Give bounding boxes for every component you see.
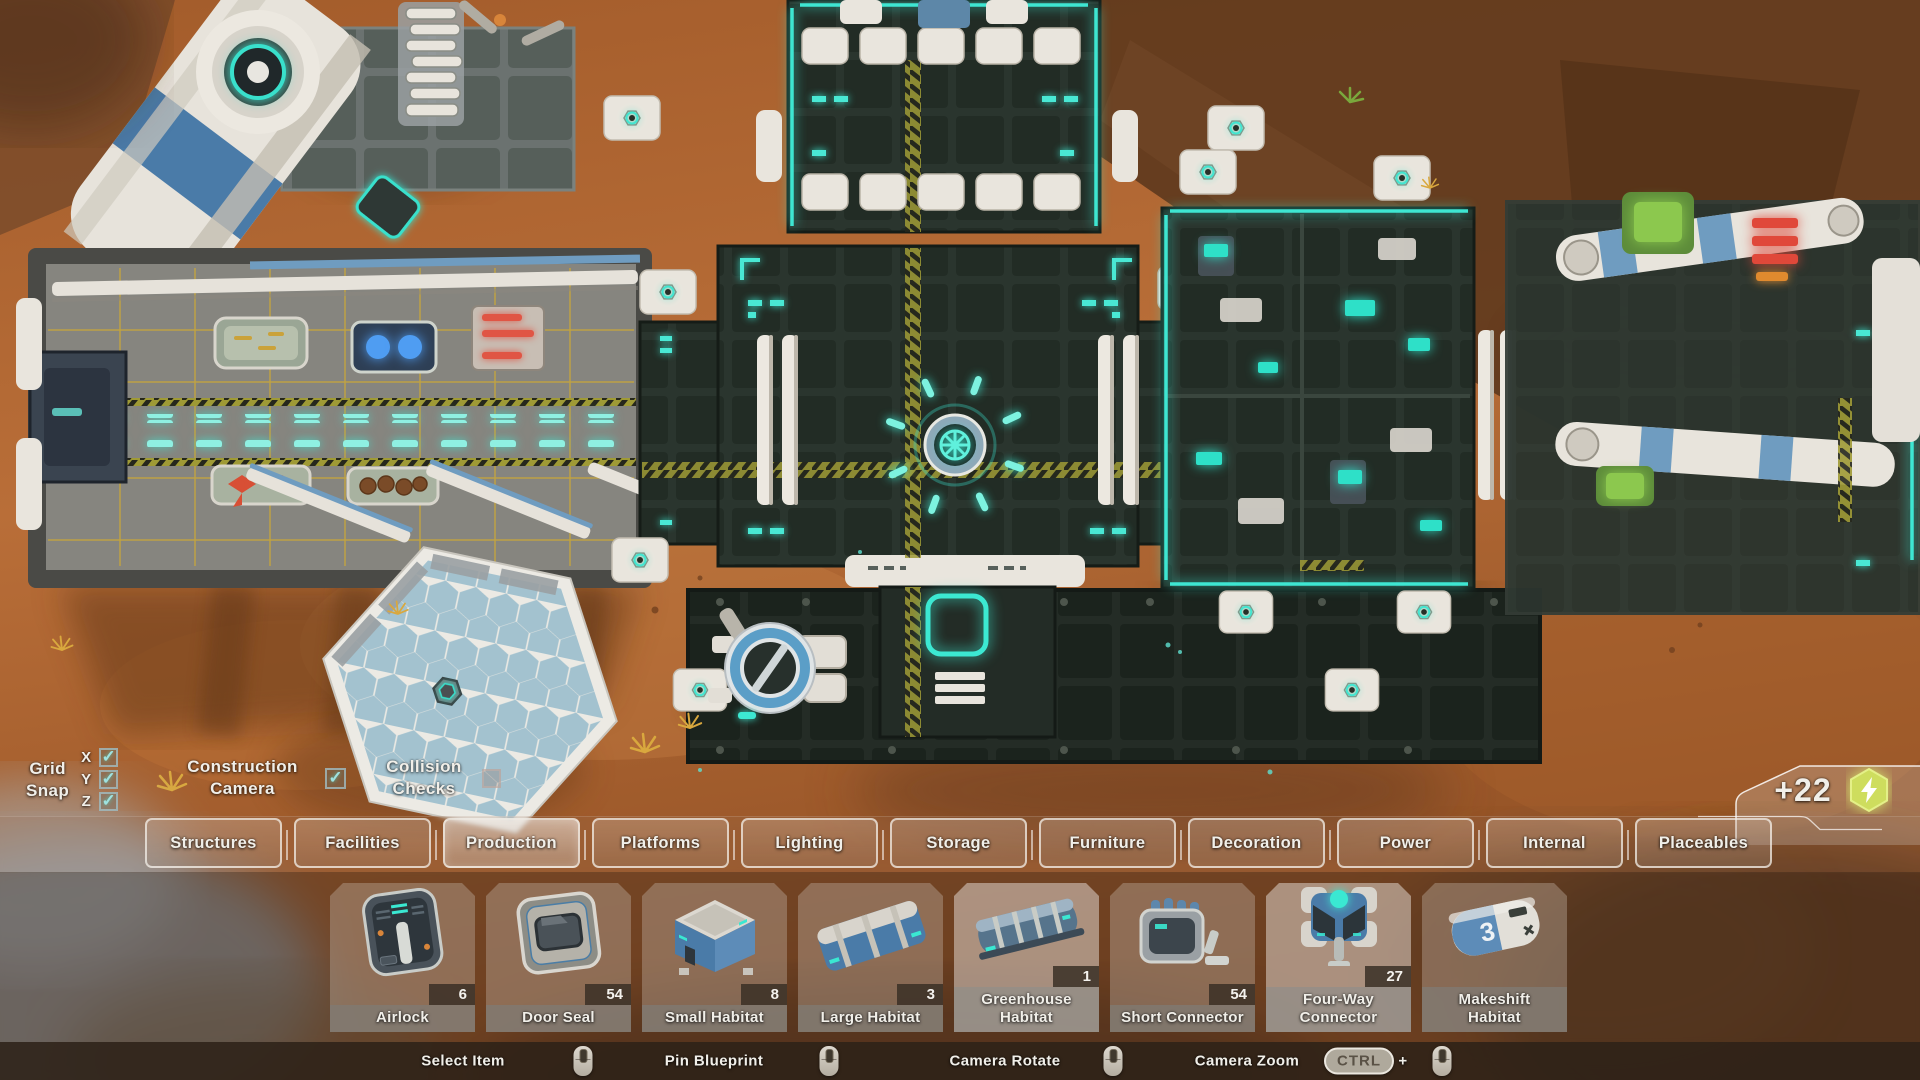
construction-camera-toggle-group: Construction Camera ✓ bbox=[170, 756, 346, 800]
tab-platforms[interactable]: Platforms bbox=[592, 818, 729, 868]
door-seal-thumbnail-icon bbox=[486, 883, 631, 984]
item-card-label: Short Connector bbox=[1110, 1005, 1255, 1032]
collision-checks-toggle-group: Collision Checks bbox=[376, 756, 501, 800]
hint-camera-zoom-label: Camera Zoom bbox=[1195, 1053, 1299, 1070]
mouse-left-click-icon bbox=[574, 1046, 593, 1076]
card-separator bbox=[1260, 976, 1263, 994]
energy-delta-value: +22 bbox=[1774, 772, 1831, 809]
airlock-thumbnail-icon bbox=[330, 883, 475, 984]
tab-decoration[interactable]: Decoration bbox=[1188, 818, 1325, 868]
axis-x-label: X bbox=[79, 749, 93, 766]
four-way-connector-thumbnail-icon bbox=[1266, 883, 1411, 966]
item-card-label: MakeshiftHabitat bbox=[1422, 987, 1567, 1032]
item-card-small-habitat[interactable]: 8 Small Habitat bbox=[642, 883, 787, 1032]
item-count-badge: 54 bbox=[585, 984, 631, 1005]
tab-power[interactable]: Power bbox=[1337, 818, 1474, 868]
hint-pin-blueprint-label: Pin Blueprint bbox=[665, 1053, 764, 1070]
tab-furniture[interactable]: Furniture bbox=[1039, 818, 1176, 868]
collision-checks-label: Collision Checks bbox=[376, 756, 472, 800]
item-card-label: Door Seal bbox=[486, 1005, 631, 1032]
mouse-scroll-icon bbox=[1433, 1046, 1452, 1076]
item-card-label: Airlock bbox=[330, 1005, 475, 1032]
card-separator bbox=[480, 976, 483, 994]
tab-production[interactable]: Production bbox=[443, 818, 580, 868]
card-separator bbox=[792, 976, 795, 994]
card-separator bbox=[636, 976, 639, 994]
tab-lighting[interactable]: Lighting bbox=[741, 818, 878, 868]
category-tabs: Structures Facilities Production Platfor… bbox=[145, 818, 1772, 868]
greenhouse-habitat-thumbnail-icon bbox=[954, 883, 1099, 966]
game-screen: Grid Snap X ✓ Y ✓ Z ✓ Construction Camer… bbox=[0, 0, 1920, 1080]
item-count-badge: 54 bbox=[1209, 984, 1255, 1005]
item-card-short-connector[interactable]: 54 Short Connector bbox=[1110, 883, 1255, 1032]
item-card-label: Small Habitat bbox=[642, 1005, 787, 1032]
tab-internal[interactable]: Internal bbox=[1486, 818, 1623, 868]
short-connector-thumbnail-icon bbox=[1110, 883, 1255, 984]
item-card-label: GreenhouseHabitat bbox=[954, 987, 1099, 1032]
item-card-makeshift-habitat[interactable]: 3 MakeshiftHabitat bbox=[1422, 883, 1567, 1032]
item-count-badge: 8 bbox=[741, 984, 787, 1005]
hint-camera-rotate-label: Camera Rotate bbox=[949, 1053, 1060, 1070]
axis-y-label: Y bbox=[79, 771, 93, 788]
control-hints: Select Item Pin Blueprint Camera Rotate … bbox=[0, 1042, 1920, 1080]
item-card-label: Large Habitat bbox=[798, 1005, 943, 1032]
makeshift-habitat-thumbnail-icon: 3 bbox=[1422, 883, 1567, 966]
card-separator bbox=[1416, 976, 1419, 994]
item-count-badge: 3 bbox=[897, 984, 943, 1005]
large-habitat-thumbnail-icon bbox=[798, 883, 943, 984]
grid-snap-label: Grid Snap bbox=[26, 758, 69, 802]
grid-snap-x-checkbox[interactable]: ✓ bbox=[99, 748, 118, 767]
tab-placeables[interactable]: Placeables bbox=[1635, 818, 1772, 868]
mouse-left-click-icon bbox=[820, 1046, 839, 1076]
card-separator bbox=[948, 976, 951, 994]
blueprint-item-list: 6 Airlock 54 Door Seal bbox=[330, 883, 1567, 1032]
tab-structures[interactable]: Structures bbox=[145, 818, 282, 868]
grid-snap-y-checkbox[interactable]: ✓ bbox=[99, 770, 118, 789]
axis-z-label: Z bbox=[79, 793, 93, 810]
collision-checks-checkbox[interactable] bbox=[482, 769, 501, 788]
item-count-badge: 6 bbox=[429, 984, 475, 1005]
plus-separator: + bbox=[1398, 1053, 1407, 1070]
grid-snap-toggle-group: Grid Snap X ✓ Y ✓ Z ✓ bbox=[26, 748, 118, 811]
card-separator bbox=[1104, 976, 1107, 994]
item-card-four-way-connector[interactable]: 27 Four-WayConnector bbox=[1266, 883, 1411, 1032]
construction-camera-checkbox[interactable]: ✓ bbox=[325, 768, 346, 789]
tab-storage[interactable]: Storage bbox=[890, 818, 1027, 868]
ctrl-keycap: CTRL bbox=[1324, 1048, 1394, 1075]
small-habitat-thumbnail-icon bbox=[642, 883, 787, 984]
tab-facilities[interactable]: Facilities bbox=[294, 818, 431, 868]
item-card-large-habitat[interactable]: 3 Large Habitat bbox=[798, 883, 943, 1032]
grid-snap-z-checkbox[interactable]: ✓ bbox=[99, 792, 118, 811]
hint-select-item-label: Select Item bbox=[421, 1053, 505, 1070]
energy-lightning-icon bbox=[1846, 766, 1892, 814]
item-card-door-seal[interactable]: 54 Door Seal bbox=[486, 883, 631, 1032]
item-card-airlock[interactable]: 6 Airlock bbox=[330, 883, 475, 1032]
item-card-greenhouse-habitat[interactable]: 1 GreenhouseHabitat bbox=[954, 883, 1099, 1032]
mouse-middle-click-icon bbox=[1104, 1046, 1123, 1076]
item-count-badge: 1 bbox=[1053, 966, 1099, 987]
construction-camera-label: Construction Camera bbox=[170, 756, 315, 800]
item-card-label: Four-WayConnector bbox=[1266, 987, 1411, 1032]
item-count-badge: 27 bbox=[1365, 966, 1411, 987]
